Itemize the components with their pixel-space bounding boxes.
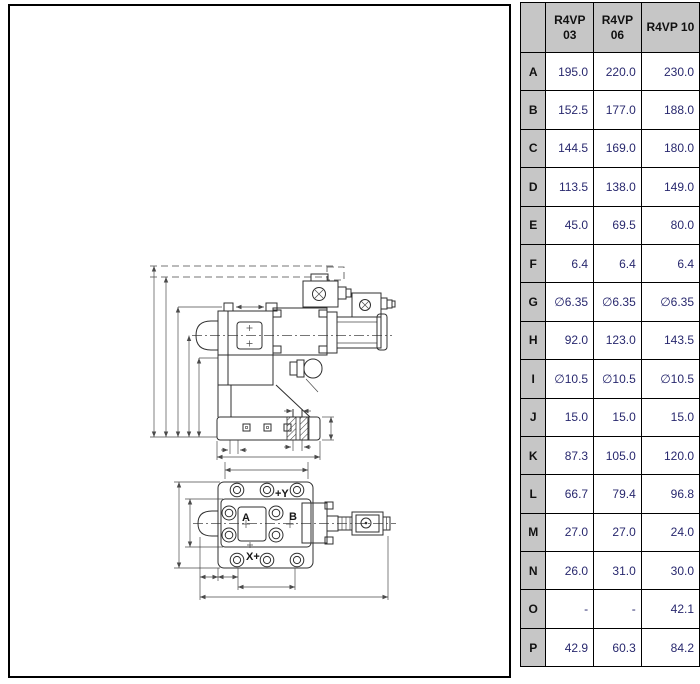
- column-header-r4vp-03: R4VP 03: [546, 3, 594, 53]
- row-label: G: [521, 283, 546, 321]
- row-label: C: [521, 129, 546, 167]
- table-row-l: L66.779.496.8: [521, 475, 700, 513]
- table-row-p: P42.960.384.2: [521, 628, 700, 666]
- dimension-value: ∅6.35: [546, 283, 594, 321]
- dimension-value: 105.0: [594, 436, 642, 474]
- dimension-value: 143.5: [641, 321, 699, 359]
- side-view-top-reference-lines: [150, 266, 344, 280]
- table-corner-cell: [521, 3, 546, 53]
- dimension-value: 177.0: [594, 91, 642, 129]
- table-body: A195.0220.0230.0B152.5177.0188.0C144.516…: [521, 53, 700, 667]
- side-view-dimension-lines: [150, 266, 222, 437]
- table-head: R4VP 03R4VP 06R4VP 10: [521, 3, 700, 53]
- table-row-n: N26.031.030.0: [521, 552, 700, 590]
- dimension-value: -: [594, 590, 642, 628]
- table-row-j: J15.015.015.0: [521, 398, 700, 436]
- row-label: F: [521, 244, 546, 282]
- row-label: L: [521, 475, 546, 513]
- dimension-value: 144.5: [546, 129, 594, 167]
- dimension-value: ∅6.35: [641, 283, 699, 321]
- dimension-value: ∅10.5: [594, 360, 642, 398]
- table-row-e: E45.069.580.0: [521, 206, 700, 244]
- row-label: D: [521, 168, 546, 206]
- dimension-value: 149.0: [641, 168, 699, 206]
- mounting-base: [217, 409, 320, 440]
- dimension-value: 24.0: [641, 513, 699, 551]
- solenoid-plan: [302, 502, 390, 544]
- dimension-value: ∅10.5: [641, 360, 699, 398]
- row-label: E: [521, 206, 546, 244]
- dimension-value: 15.0: [594, 398, 642, 436]
- row-label: I: [521, 360, 546, 398]
- dimension-value: 69.5: [594, 206, 642, 244]
- dimension-value: 27.0: [594, 513, 642, 551]
- port-b-label: B: [289, 511, 297, 523]
- dimension-value: 220.0: [594, 53, 642, 91]
- table-row-o: O--42.1: [521, 590, 700, 628]
- dimension-value: 152.5: [546, 91, 594, 129]
- dimension-value: 15.0: [546, 398, 594, 436]
- dimension-value: 87.3: [546, 436, 594, 474]
- row-label: H: [521, 321, 546, 359]
- dimension-value: 180.0: [641, 129, 699, 167]
- table-row-b: B152.5177.0188.0: [521, 91, 700, 129]
- din-connector-right: [352, 293, 395, 317]
- dimension-value: ∅6.35: [594, 283, 642, 321]
- dimension-value: 195.0: [546, 53, 594, 91]
- table-row-i: I∅10.5∅10.5∅10.5: [521, 360, 700, 398]
- dimension-value: 45.0: [546, 206, 594, 244]
- dimension-value: 42.1: [641, 590, 699, 628]
- manual-override-knob: [290, 359, 322, 392]
- dimension-value: 169.0: [594, 129, 642, 167]
- dimension-value: 6.4: [641, 244, 699, 282]
- dimension-value: 26.0: [546, 552, 594, 590]
- side-view: [150, 266, 395, 479]
- dimension-value: 96.8: [641, 475, 699, 513]
- table-row-f: F6.46.46.4: [521, 244, 700, 282]
- row-label: M: [521, 513, 546, 551]
- row-label: P: [521, 628, 546, 666]
- dimension-value: 27.0: [546, 513, 594, 551]
- row-label: K: [521, 436, 546, 474]
- row-label: A: [521, 53, 546, 91]
- port-a-label: A: [242, 512, 250, 524]
- axis-x-label: X+: [246, 551, 260, 563]
- column-header-r4vp-06: R4VP 06: [594, 3, 642, 53]
- base-dimensions: [217, 417, 334, 479]
- dimension-value: 30.0: [641, 552, 699, 590]
- table-row-h: H92.0123.0143.5: [521, 321, 700, 359]
- table-row-d: D113.5138.0149.0: [521, 168, 700, 206]
- dimension-value: 79.4: [594, 475, 642, 513]
- row-label: B: [521, 91, 546, 129]
- dimension-value: -: [546, 590, 594, 628]
- dimension-value: 123.0: [594, 321, 642, 359]
- table-row-k: K87.3105.0120.0: [521, 436, 700, 474]
- plan-view: A B +Y X+: [174, 482, 396, 600]
- row-label: J: [521, 398, 546, 436]
- dimension-value: 120.0: [641, 436, 699, 474]
- dimension-value: 6.4: [546, 244, 594, 282]
- dimension-value: 188.0: [641, 91, 699, 129]
- dimension-value: 6.4: [594, 244, 642, 282]
- dimension-value: 113.5: [546, 168, 594, 206]
- row-label: N: [521, 552, 546, 590]
- row-label: O: [521, 590, 546, 628]
- dimension-table: R4VP 03R4VP 06R4VP 10 A195.0220.0230.0B1…: [520, 2, 700, 667]
- dimension-value: ∅10.5: [546, 360, 594, 398]
- solenoid: [273, 308, 387, 355]
- table-row-c: C144.5169.0180.0: [521, 129, 700, 167]
- header-row: R4VP 03R4VP 06R4VP 10: [521, 3, 700, 53]
- dimension-value: 60.3: [594, 628, 642, 666]
- dimension-value: 230.0: [641, 53, 699, 91]
- pilot-valve-body: [196, 303, 310, 417]
- dimension-value: 80.0: [641, 206, 699, 244]
- dimension-value: 42.9: [546, 628, 594, 666]
- table-row-m: M27.027.024.0: [521, 513, 700, 551]
- table-row-g: G∅6.35∅6.35∅6.35: [521, 283, 700, 321]
- axis-y-label: +Y: [275, 488, 289, 500]
- dimension-value: 84.2: [641, 628, 699, 666]
- dimension-value: 92.0: [546, 321, 594, 359]
- dimension-value: 66.7: [546, 475, 594, 513]
- column-header-r4vp-10: R4VP 10: [641, 3, 699, 53]
- dimension-value: 138.0: [594, 168, 642, 206]
- dimension-value: 15.0: [641, 398, 699, 436]
- dimension-value: 31.0: [594, 552, 642, 590]
- table-row-a: A195.0220.0230.0: [521, 53, 700, 91]
